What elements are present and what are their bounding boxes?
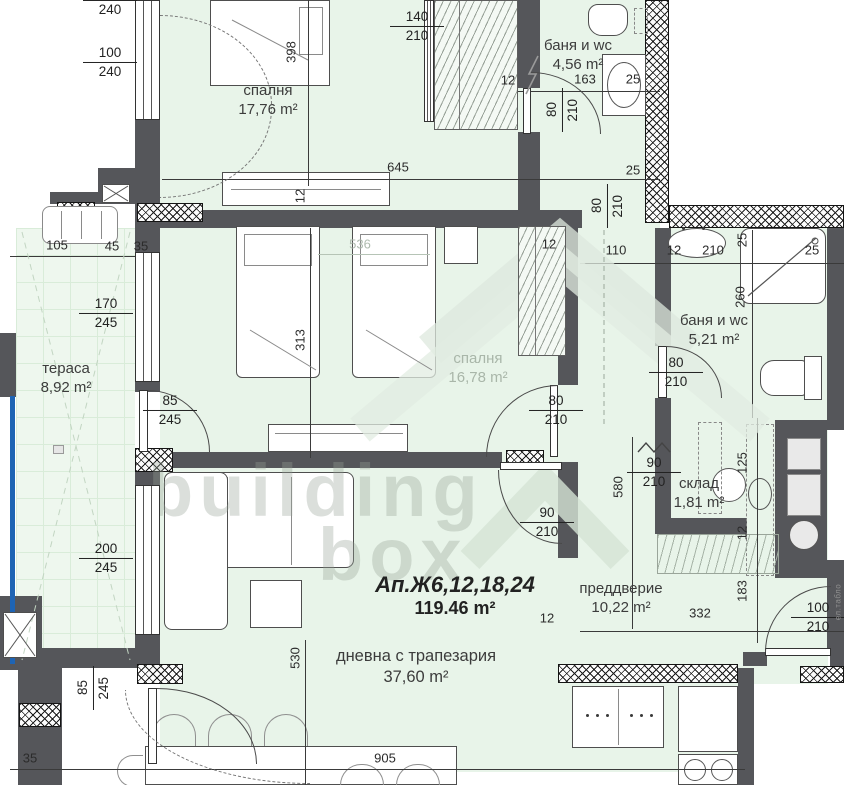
opening-size-label: 100240 (83, 0, 137, 17)
fraction-bar (83, 0, 137, 1)
opening-height: 210 (610, 195, 626, 218)
apartment-title: Ап.Ж6,12,18,24 119.46 m² (375, 572, 535, 619)
opening-height: 210 (545, 412, 568, 427)
room-area: 1,81 m² (674, 494, 725, 513)
opening-size-label: 85245 (75, 666, 111, 710)
room-label: спалня16,78 m² (448, 350, 507, 388)
dimension-label: 313 (293, 329, 308, 351)
opening-width: 170 (95, 296, 118, 311)
dimension-label: 125 (735, 452, 750, 474)
opening-size-label: 200245 (79, 541, 133, 575)
fraction-bar (79, 313, 133, 314)
fraction-bar (93, 666, 94, 710)
dimension-label: 12 (293, 189, 308, 203)
opening-width: 80 (544, 102, 560, 117)
folding-door-icon (638, 443, 670, 452)
opening-size-label: 90210 (520, 505, 574, 539)
room-name: дневна с трапезария (336, 646, 496, 667)
fraction-bar (562, 88, 563, 132)
opening-width: 90 (539, 505, 554, 520)
room-name: спалня (448, 350, 507, 369)
dimension-label: 536 (349, 237, 371, 252)
opening-width: 140 (406, 9, 429, 24)
fraction-bar (79, 558, 133, 559)
opening-size-label: 80210 (529, 393, 583, 427)
opening-height: 245 (95, 315, 118, 330)
room-label: баня и wc4,56 m² (544, 37, 612, 75)
opening-width: 85 (75, 680, 91, 695)
room-area: 8,92 m² (41, 379, 92, 398)
opening-width: 100 (807, 600, 830, 615)
dimension-label: 210 (702, 243, 724, 258)
floor-plan: building box (0, 0, 844, 785)
room-label: преддверие10,22 m² (579, 580, 662, 618)
opening-width: 80 (589, 198, 605, 213)
room-area: 16,78 m² (448, 369, 507, 388)
room-name: баня и wc (544, 37, 612, 56)
opening-width: 85 (162, 393, 177, 408)
opening-size-label: 80210 (544, 88, 580, 132)
dimension-label: 12 (540, 611, 554, 626)
dimension-label: 580 (611, 476, 626, 498)
opening-size-label: 80210 (589, 184, 625, 228)
dimension-label: 45 (105, 239, 119, 254)
dimension-label: 905 (374, 751, 396, 766)
dimension-label: 35 (23, 751, 37, 766)
dimension-label: 332 (689, 606, 711, 621)
dimension-label: 163 (574, 72, 596, 87)
dimension-label: 25 (626, 163, 640, 178)
fraction-bar (143, 410, 197, 411)
opening-height: 210 (536, 524, 559, 539)
opening-width: 80 (548, 393, 563, 408)
opening-width: 80 (668, 355, 683, 370)
fraction-bar (649, 372, 703, 373)
dimension-label: 12 (735, 526, 750, 540)
opening-height: 210 (406, 28, 429, 43)
dimension-label: 183 (735, 580, 750, 602)
opening-height: 210 (643, 474, 666, 489)
room-label: тераса8,92 m² (41, 360, 92, 398)
apartment-total-area: 119.46 m² (375, 598, 535, 619)
room-name: спалня (238, 82, 297, 101)
dimension-label: 12 (667, 243, 681, 258)
opening-height: 210 (565, 99, 581, 122)
dimension-label: 25 (735, 233, 750, 247)
dimension-label: 260 (733, 286, 748, 308)
opening-height: 240 (99, 2, 122, 17)
dimension-label: 12 (501, 73, 515, 88)
opening-width: 200 (95, 541, 118, 556)
room-area: 37,60 m² (336, 667, 496, 688)
room-label: склад1,81 m² (674, 475, 725, 513)
room-area: 5,21 m² (680, 331, 748, 350)
opening-size-label: 80210 (649, 355, 703, 389)
dimension-label: ел.табло (834, 584, 843, 621)
fraction-bar (607, 184, 608, 228)
dimension-label: 105 (46, 238, 68, 253)
opening-size-label: 90210 (627, 455, 681, 489)
room-label: баня и wc5,21 m² (680, 312, 748, 350)
dimension-label: 25 (805, 243, 819, 258)
fraction-bar (529, 410, 583, 411)
electric-symbol-icon (526, 56, 538, 94)
opening-size-label: 100240 (83, 45, 137, 79)
opening-height: 240 (99, 64, 122, 79)
opening-width: 90 (646, 455, 661, 470)
room-label: дневна с трапезария37,60 m² (336, 646, 496, 687)
dimension-label: 398 (284, 41, 299, 63)
opening-height: 210 (665, 374, 688, 389)
dimension-label: 530 (288, 647, 303, 669)
room-name: тераса (41, 360, 92, 379)
dimension-label: 645 (387, 160, 409, 175)
opening-height: 245 (96, 677, 112, 700)
dimension-label: 12 (542, 237, 556, 252)
opening-size-label: 170245 (79, 296, 133, 330)
dimension-label: 110 (606, 243, 627, 258)
room-name: баня и wc (680, 312, 748, 331)
opening-width: 100 (99, 45, 122, 60)
opening-height: 245 (159, 412, 182, 427)
apartment-number: Ап.Ж6,12,18,24 (375, 572, 535, 598)
fraction-bar (520, 522, 574, 523)
opening-height: 245 (95, 560, 118, 575)
opening-size-label: 140210 (390, 9, 444, 43)
room-name: склад (674, 475, 725, 494)
opening-height: 210 (807, 619, 830, 634)
fraction-bar (83, 62, 137, 63)
fraction-bar (627, 472, 681, 473)
dimension-label: 25 (626, 72, 640, 87)
room-area: 17,76 m² (238, 101, 297, 120)
fraction-bar (390, 26, 444, 27)
room-label: спалня17,76 m² (238, 82, 297, 120)
opening-size-label: 85245 (143, 393, 197, 427)
room-area: 10,22 m² (579, 599, 662, 618)
room-name: преддверие (579, 580, 662, 599)
dimension-label: 35 (134, 239, 148, 254)
